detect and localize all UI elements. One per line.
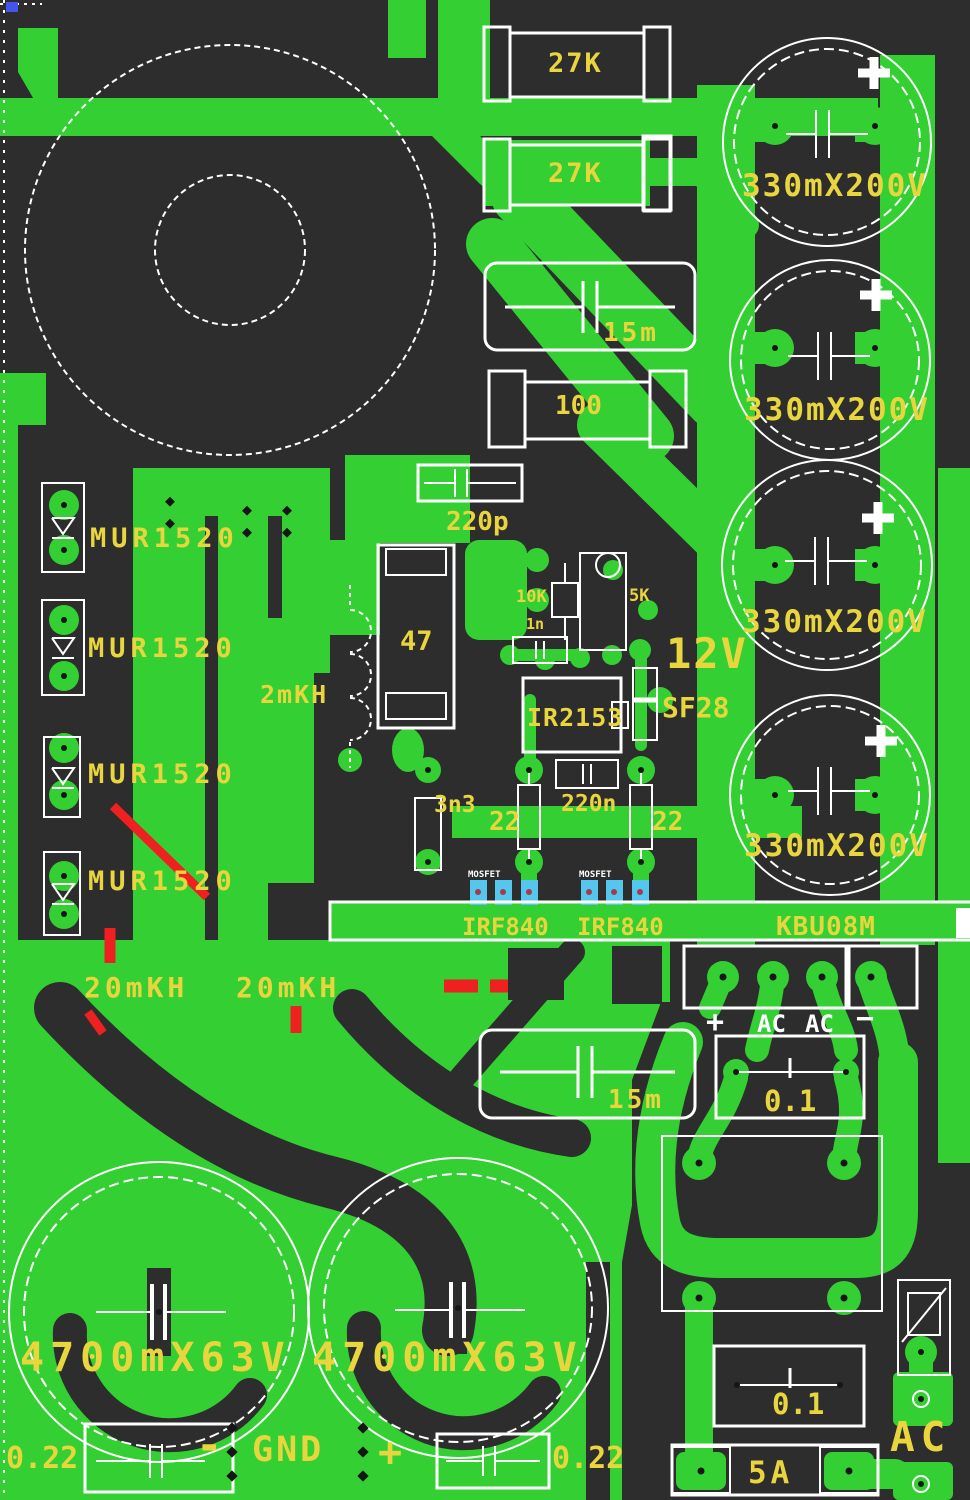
label-out-plus: + xyxy=(378,1430,402,1476)
label-c01-top: 0.1 xyxy=(764,1084,816,1118)
label-r22-2: 22 xyxy=(652,807,683,837)
label-r22-1: 22 xyxy=(489,807,520,837)
label-r100: 100 xyxy=(555,391,602,421)
label-20mkh-1: 20mKH xyxy=(84,971,188,1004)
label-c15m-1: 15m xyxy=(603,318,659,348)
label-c220n: 220n xyxy=(561,791,616,817)
pcb-board: 27K 27K 330mX200V 330mX200V 330mX200V 33… xyxy=(0,0,970,1500)
label-mur1520-1: MUR1520 xyxy=(90,523,239,554)
label-cap330-3: 330mX200V xyxy=(742,604,928,640)
corner-marker xyxy=(6,2,18,12)
label-c01-bottom: 0.1 xyxy=(772,1387,824,1421)
label-irf840-1: IRF840 xyxy=(462,913,549,941)
label-bridge-ac1: AC xyxy=(757,1010,786,1038)
label-c15m-2: 15m xyxy=(608,1085,664,1115)
label-mosfet-1: MOSFET xyxy=(468,870,501,880)
pcb-layout-canvas: 27K 27K 330mX200V 330mX200V 330mX200V 33… xyxy=(0,0,970,1500)
label-mosfet-2: MOSFET xyxy=(579,870,612,880)
label-l2mkh: 2mKH xyxy=(260,680,328,709)
label-out-minus: - xyxy=(196,1420,223,1471)
label-cap4700-1: 4700mX63V xyxy=(20,1335,291,1381)
label-irf840-2: IRF840 xyxy=(577,913,664,941)
label-out-gnd: GND xyxy=(252,1430,324,1470)
label-c022-right: 0.22 xyxy=(552,1441,624,1476)
label-sf28: SF28 xyxy=(662,691,729,724)
label-ac-input: AC xyxy=(890,1413,951,1461)
label-mur1520-4: MUR1520 xyxy=(88,866,237,897)
label-ir2153: IR2153 xyxy=(527,703,623,732)
label-cap330-1: 330mX200V xyxy=(742,168,928,204)
label-20mkh-2: 20mKH xyxy=(236,971,340,1004)
label-bridge-plus: + xyxy=(706,1005,724,1040)
label-r10k: 10K xyxy=(516,587,547,607)
label-bridge-ac2: AC xyxy=(805,1010,834,1038)
label-c220p: 220p xyxy=(446,507,509,537)
label-r27k-1: 27K xyxy=(548,48,603,79)
label-12v: 12V xyxy=(666,629,748,678)
label-mur1520-3: MUR1520 xyxy=(88,759,237,790)
label-c1n: 1n xyxy=(526,615,544,633)
label-kbu08m: KBU08M xyxy=(776,912,876,942)
label-mur1520-2: MUR1520 xyxy=(88,633,237,664)
label-r27k-2: 27K xyxy=(548,158,603,189)
label-c3n3: 3n3 xyxy=(434,792,476,818)
label-c022-left: 0.22 xyxy=(6,1441,78,1476)
label-cap330-2: 330mX200V xyxy=(744,392,930,428)
label-cap4700-2: 4700mX63V xyxy=(312,1335,583,1381)
label-bridge-minus: − xyxy=(856,1001,874,1036)
label-cap330-4: 330mX200V xyxy=(744,828,930,864)
label-r5k: 5K xyxy=(629,586,650,606)
label-fuse-5a: 5A xyxy=(748,1455,793,1491)
label-r47: 47 xyxy=(400,626,433,657)
